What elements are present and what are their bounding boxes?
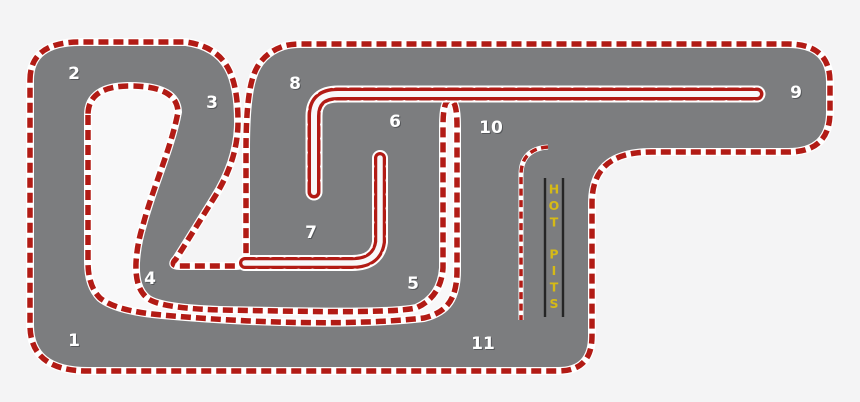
hot-pits-letter: T [550,280,559,295]
corner-number: 1 [68,331,80,351]
hot-pits-letter: T [550,215,559,230]
corner-number: 10 [479,118,503,138]
corner-number: 5 [407,274,419,294]
hot-pits-letter: O [549,198,560,213]
hot-pits-letter: I [552,263,557,278]
track-canvas: HOTPITS 11223344556677889910101111 [0,0,860,402]
corner-number: 11 [471,334,495,354]
corner-number: 4 [144,269,156,289]
corner-number: 3 [206,93,218,113]
hot-pits-letter: H [549,182,559,197]
karting-track-map: HOTPITS 11223344556677889910101111 [0,0,860,402]
hot-pits-letter: S [549,296,558,311]
hot-pits-letter: P [549,247,558,262]
corner-number: 7 [305,223,317,243]
corner-number: 8 [289,74,301,94]
corner-number: 2 [68,64,80,84]
corner-number: 6 [389,112,401,132]
hot-pits-label: HOTPITS [549,182,560,312]
corner-number: 9 [790,83,802,103]
